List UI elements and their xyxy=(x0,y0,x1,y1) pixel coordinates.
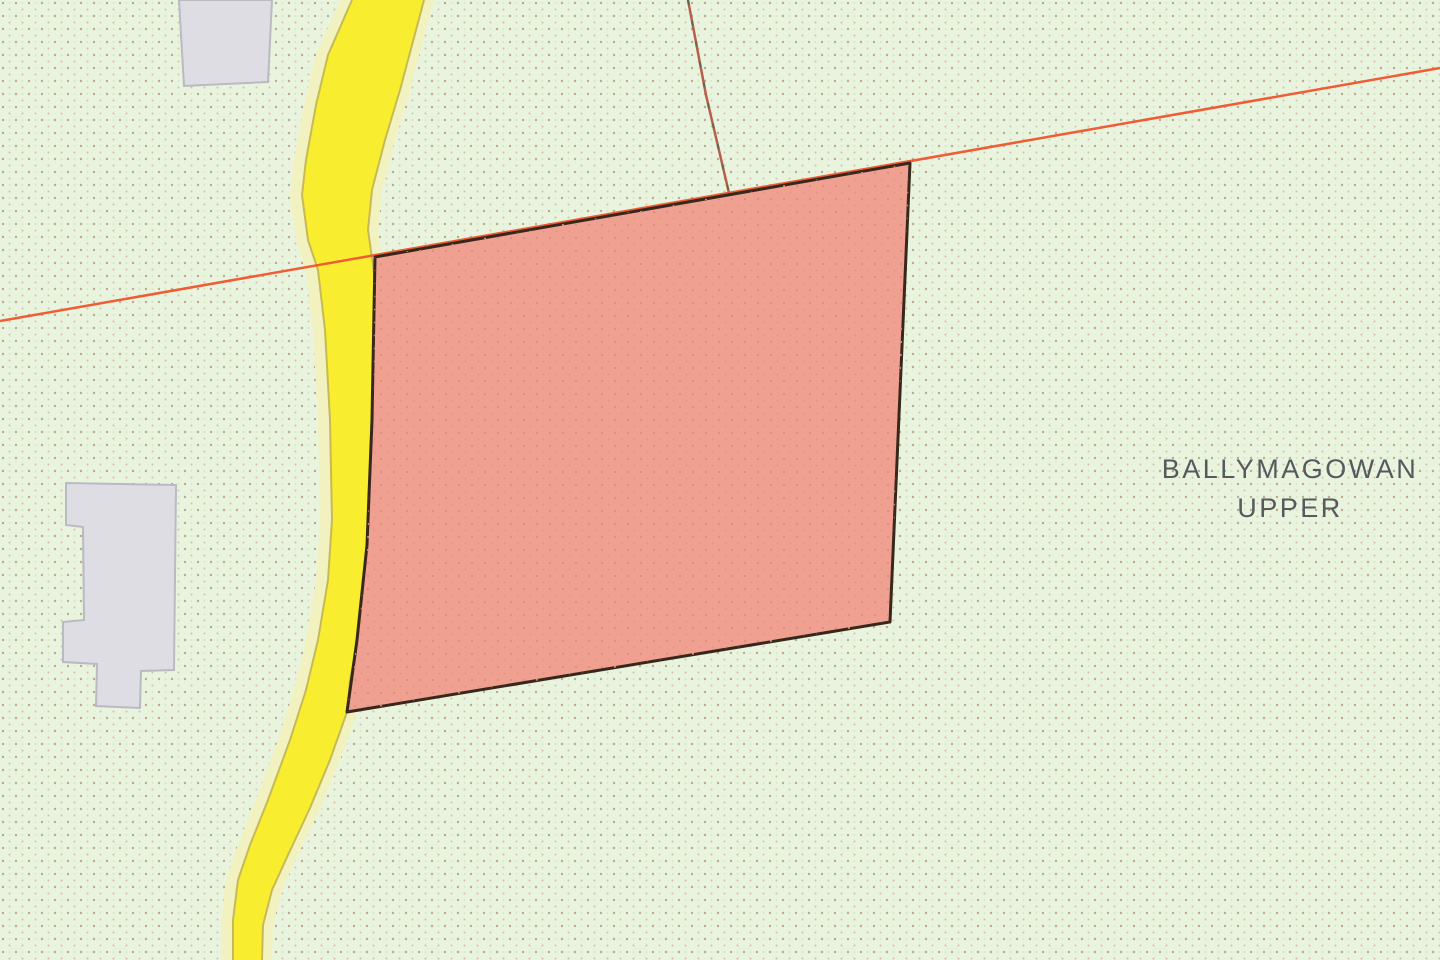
townland-label-line1: BALLYMAGOWAN xyxy=(1120,450,1440,489)
townland-label-line2: UPPER xyxy=(1120,489,1440,528)
building-top-left xyxy=(179,0,272,86)
townland-label: BALLYMAGOWAN UPPER xyxy=(1120,450,1440,528)
map-canvas[interactable]: BALLYMAGOWAN UPPER xyxy=(0,0,1440,960)
